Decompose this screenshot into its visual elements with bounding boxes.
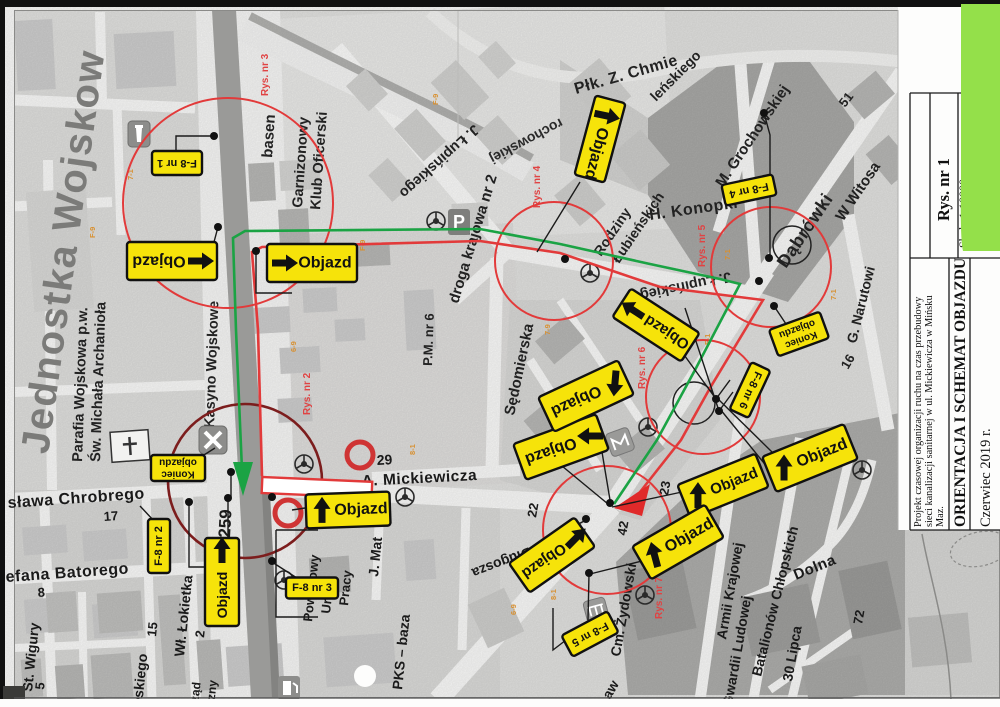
svg-text:6-9: 6-9	[509, 604, 518, 615]
svg-text:8-1: 8-1	[408, 444, 417, 455]
svg-text:Objazd: Objazd	[214, 572, 230, 619]
svg-text:Projekt czasowej organizacji r: Projekt czasowej organizacji ruchu na cz…	[913, 296, 924, 527]
svg-text:Czerwiec 2019 r.: Czerwiec 2019 r.	[978, 428, 994, 527]
svg-text:Objazd: Objazd	[298, 255, 351, 272]
svg-text:42: 42	[614, 520, 631, 537]
svg-text:8: 8	[37, 585, 45, 600]
svg-text:Rys. nr 5: Rys. nr 5	[697, 224, 708, 267]
svg-text:6-9: 6-9	[289, 341, 298, 352]
svg-text:Rys. nr 2: Rys. nr 2	[302, 372, 313, 415]
svg-text:basen: basen	[259, 114, 279, 158]
svg-text:Koniec: Koniec	[161, 468, 195, 479]
svg-text:8-1: 8-1	[549, 589, 558, 600]
svg-text:17: 17	[103, 508, 118, 524]
svg-text:Maz.: Maz.	[935, 506, 946, 527]
svg-text:F-8 nr 1: F-8 nr 1	[157, 157, 197, 169]
svg-text:Rys. nr 4: Rys. nr 4	[532, 165, 543, 208]
svg-text:22: 22	[524, 502, 541, 519]
svg-text:7-9: 7-9	[543, 324, 552, 335]
svg-text:F-8 nr 3: F-8 nr 3	[292, 582, 332, 594]
svg-text:P.M. nr 6: P.M. nr 6	[420, 313, 437, 366]
svg-text:Rys. nr 7: Rys. nr 7	[654, 576, 665, 619]
svg-text:Objazd: Objazd	[132, 253, 185, 270]
svg-text:Rys. nr 3: Rys. nr 3	[260, 53, 271, 96]
svg-text:72: 72	[850, 609, 867, 626]
svg-text:objazdu: objazdu	[159, 457, 197, 468]
svg-text:7-1: 7-1	[829, 289, 838, 300]
svg-text:29: 29	[376, 451, 393, 468]
svg-text:Rys. nr 6: Rys. nr 6	[637, 346, 648, 389]
svg-text:Objazd: Objazd	[334, 500, 388, 519]
svg-text:F-9: F-9	[431, 94, 440, 105]
svg-text:sieci kanalizacji sanitarnej w: sieci kanalizacji sanitarnej w ul. Micki…	[924, 295, 935, 527]
svg-text:15: 15	[144, 621, 160, 637]
svg-text:F-9: F-9	[88, 227, 97, 238]
svg-text:Rys. nr 1: Rys. nr 1	[934, 158, 953, 221]
svg-text:7-1: 7-1	[723, 249, 732, 260]
svg-text:F-8 nr 2: F-8 nr 2	[153, 526, 165, 566]
svg-text:259: 259	[215, 509, 235, 538]
svg-text:ORIENTACJA I SCHEMAT OBJAZDU: ORIENTACJA I SCHEMAT OBJAZDU	[952, 258, 969, 527]
